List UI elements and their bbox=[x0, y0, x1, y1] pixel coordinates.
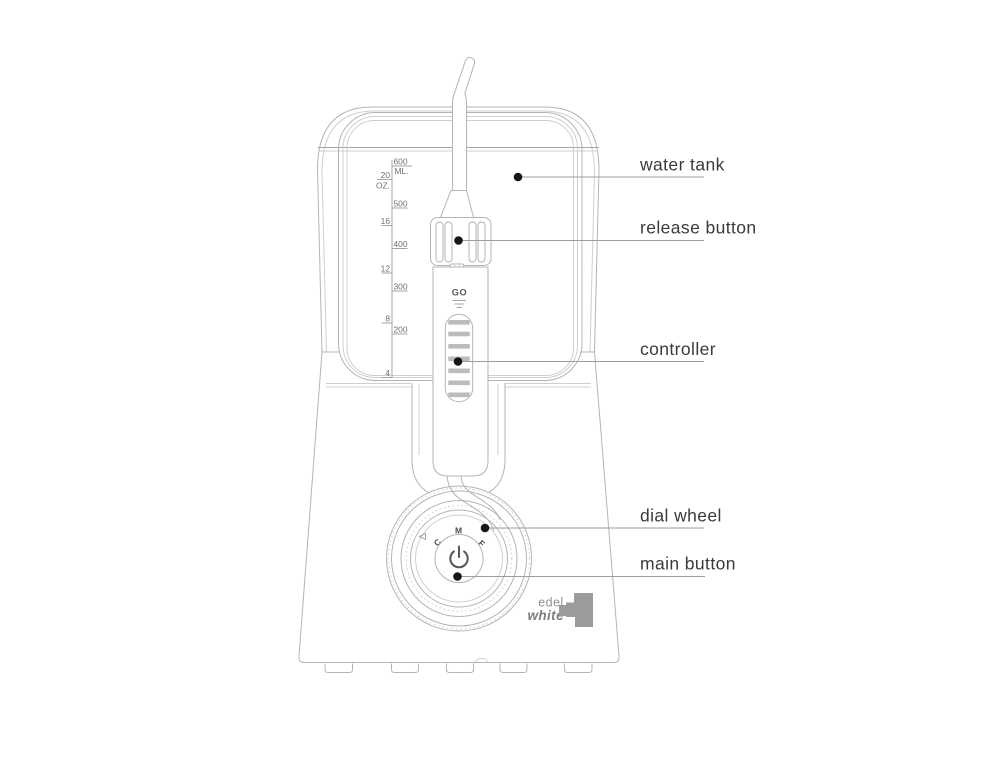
cradle-wall-right-outer bbox=[488, 384, 505, 494]
callout-release-button: release button bbox=[454, 218, 756, 245]
callout-dot bbox=[453, 572, 462, 581]
brand-mark-icon bbox=[559, 593, 593, 628]
diagram-canvas: 600 ML. 500 400 300 200 20 OZ. 16 12 8 4 bbox=[0, 0, 1000, 760]
flosser-diagram: 600 ML. 500 400 300 200 20 OZ. 16 12 8 4 bbox=[0, 0, 1000, 760]
base-feet bbox=[325, 659, 592, 673]
measurement-scale: 600 ML. 500 400 300 200 20 OZ. 16 12 8 4 bbox=[376, 157, 412, 379]
release-neck bbox=[441, 191, 474, 218]
callout-label: dial wheel bbox=[640, 506, 722, 526]
controller-rib bbox=[448, 369, 470, 374]
callout-dot bbox=[514, 173, 523, 182]
scale-oz-4: 4 bbox=[385, 368, 390, 378]
foot bbox=[447, 664, 474, 673]
controller-rib bbox=[448, 332, 470, 337]
callout-dot bbox=[481, 524, 490, 533]
controller-rib bbox=[448, 344, 470, 349]
callout-dot bbox=[454, 236, 463, 245]
scale-oz-8: 8 bbox=[385, 314, 390, 324]
go-label: GO bbox=[452, 288, 468, 298]
scale-oz-20: 20 bbox=[381, 170, 391, 180]
foot bbox=[565, 664, 593, 673]
dial-ring-outer[interactable] bbox=[387, 486, 532, 631]
brand-word-bottom: white bbox=[527, 608, 564, 623]
brand-logo: edel white bbox=[527, 593, 593, 628]
scale-ml-500: 500 bbox=[394, 199, 408, 209]
cradle-wall-left-outer bbox=[412, 384, 429, 494]
callout-label: controller bbox=[640, 339, 716, 359]
callout-label: release button bbox=[640, 218, 757, 238]
callout-dot bbox=[454, 357, 463, 366]
cradle-ledge-right bbox=[505, 384, 591, 388]
foot bbox=[325, 664, 353, 673]
foot bbox=[500, 664, 527, 673]
scale-oz-12: 12 bbox=[381, 264, 391, 274]
dial-wheel[interactable]: M C F bbox=[387, 486, 532, 631]
dial-letter-m: M bbox=[455, 526, 462, 536]
release-button bbox=[431, 191, 492, 272]
scale-ml-200: 200 bbox=[394, 325, 408, 335]
controller-rib bbox=[448, 393, 470, 398]
scale-ml-600: 600 bbox=[394, 157, 408, 167]
cradle-ledge-left bbox=[326, 384, 412, 388]
scale-ml-300: 300 bbox=[394, 282, 408, 292]
scale-oz-16: 16 bbox=[381, 216, 391, 226]
scale-ml-400: 400 bbox=[394, 239, 408, 249]
callout-water-tank: water tank bbox=[514, 155, 725, 182]
foot bbox=[392, 664, 419, 673]
callout-label: water tank bbox=[639, 155, 725, 175]
handle-body: GO bbox=[433, 267, 488, 476]
controller-rib bbox=[448, 320, 470, 325]
callout-label: main button bbox=[640, 554, 736, 574]
scale-ml-unit: ML. bbox=[395, 166, 409, 176]
controller-rib bbox=[448, 381, 470, 386]
scale-oz-unit: OZ. bbox=[376, 181, 390, 191]
base-notch bbox=[476, 659, 488, 663]
